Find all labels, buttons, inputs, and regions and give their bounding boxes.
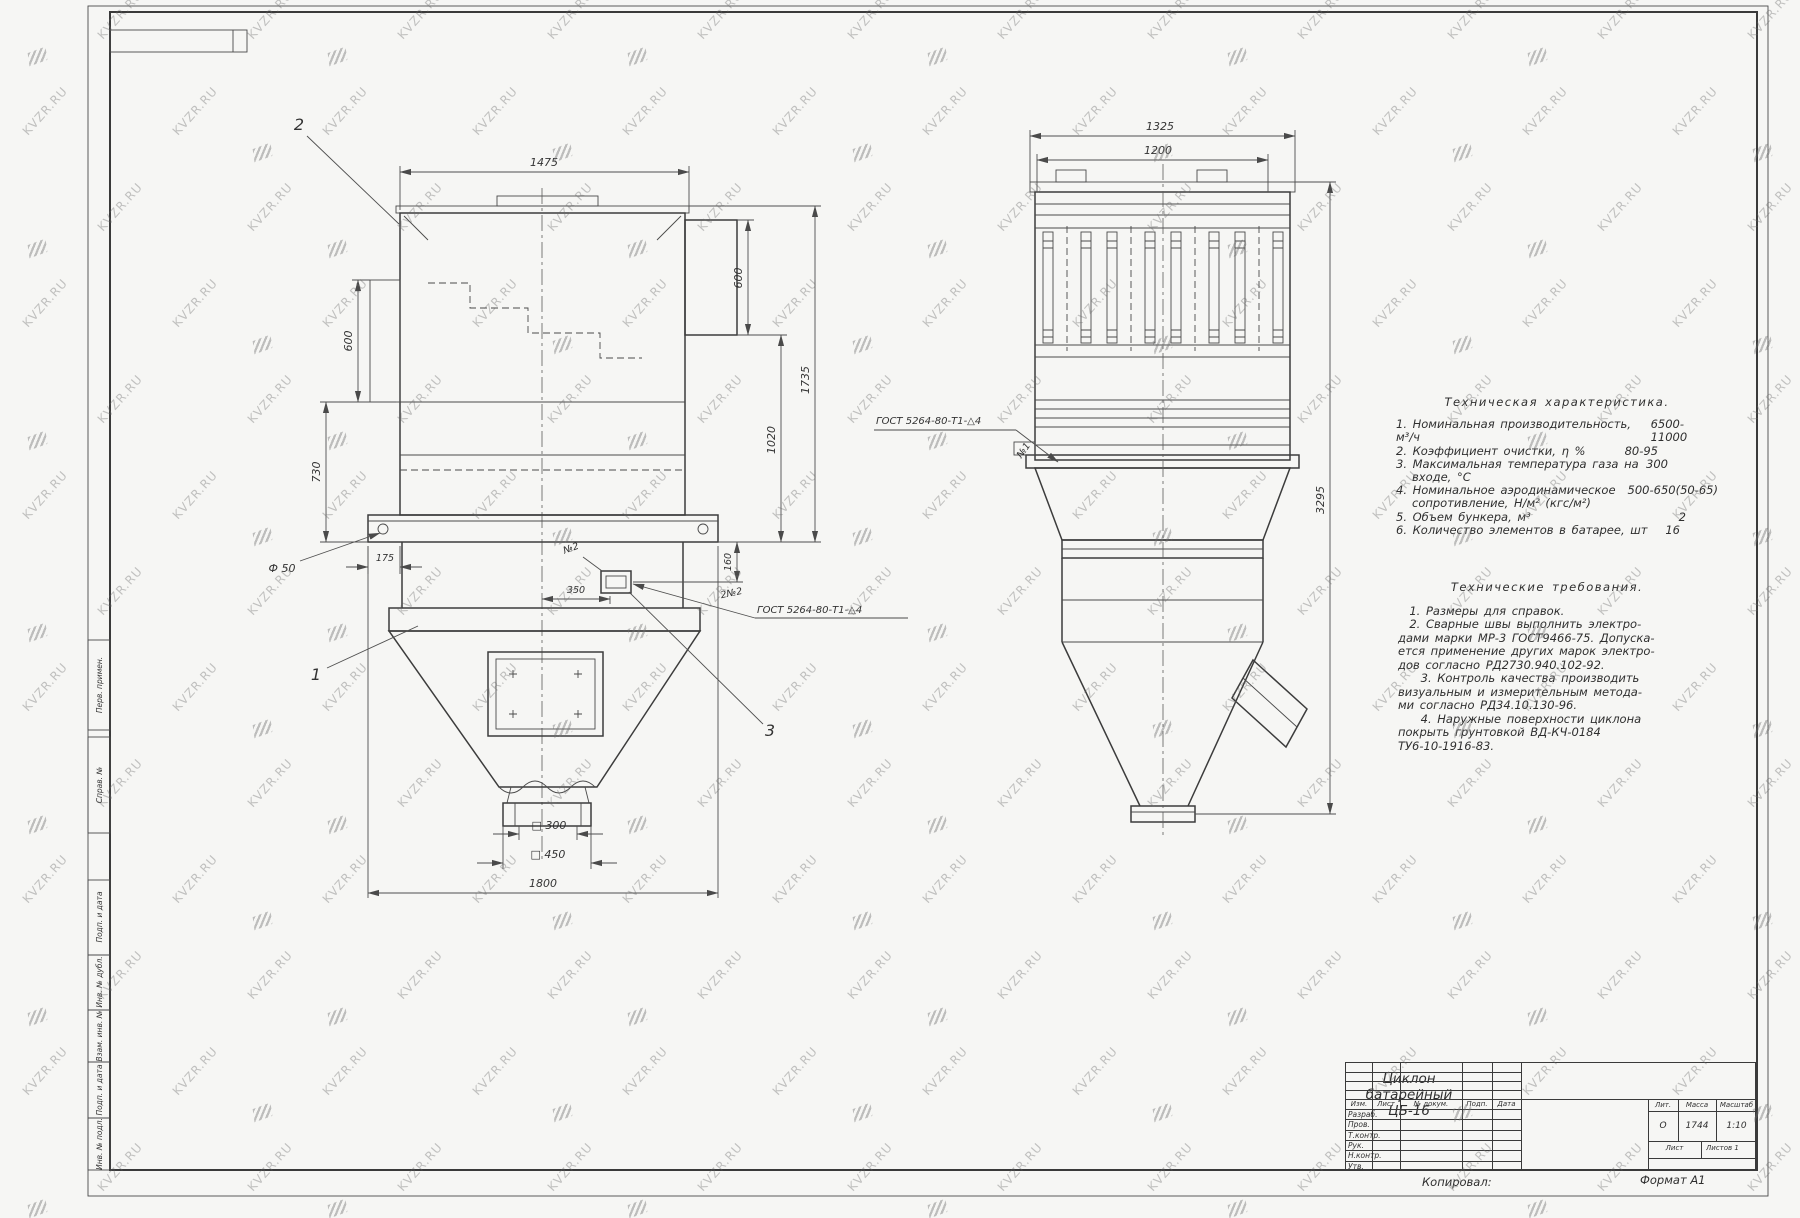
- callout-2-leader: [307, 136, 399, 224]
- rule: [1701, 1141, 1702, 1158]
- corner-gussets: [404, 216, 681, 240]
- watermark-hatch-icon: [328, 1199, 348, 1218]
- callout-2: 2: [294, 115, 304, 134]
- lifting-lug: [1056, 170, 1086, 182]
- stamp-label: Инв. № подл.: [95, 1118, 104, 1170]
- tech-char-label: 5. Объем бункера, м³: [1396, 511, 1531, 524]
- bolt-hole-left: [378, 524, 388, 534]
- dim-350: 350: [567, 585, 585, 596]
- stamp-label: Справ. №: [95, 767, 104, 804]
- tech-char-row: 5. Объем бункера, м³2: [1396, 511, 1718, 524]
- nozzle-inner: [606, 576, 626, 588]
- col-izm: Изм.: [1346, 1100, 1372, 1108]
- scale-value: 1:10: [1716, 1121, 1757, 1131]
- tech-req-line: визуальным и измерительным метода-: [1398, 686, 1696, 700]
- lifting-lug: [1197, 170, 1227, 182]
- support-ring: [368, 515, 718, 542]
- tech-char-value: 16: [1665, 524, 1718, 537]
- lit-label: Лит.: [1648, 1101, 1678, 1109]
- row-tkontr: Т.контр.: [1348, 1131, 1400, 1140]
- hopper: [389, 631, 700, 787]
- tech-req-line: дов согласно РД2730.940.102-92.: [1398, 659, 1696, 673]
- dim-phi50: Ф 50: [269, 562, 296, 575]
- stamp-label: Подп. и дата: [95, 891, 104, 942]
- col-list: Лист: [1372, 1100, 1400, 1108]
- technical-characteristics: Техническая характеристика. 1. Номинальн…: [1396, 396, 1718, 537]
- mass-label: Масса: [1678, 1101, 1716, 1109]
- watermark-hatch-icon: [628, 1199, 648, 1218]
- tech-reqs-title: Технические требования.: [1398, 581, 1696, 595]
- bolt-hole-right: [698, 524, 708, 534]
- tech-char-value: 300: [1646, 458, 1718, 471]
- sheet-label: Лист: [1648, 1144, 1701, 1152]
- weld-gost-callout: ГОСТ 5264-80-Т1-△4: [876, 416, 981, 427]
- left-view-body: [368, 188, 737, 862]
- weld-note-n1: №1: [1014, 441, 1033, 461]
- rule: [1346, 1081, 1521, 1082]
- bunker-walls: [402, 542, 683, 608]
- row-ruk: Рук.: [1348, 1141, 1400, 1150]
- element-tube: [1235, 232, 1245, 343]
- weld-count-2n2: 2№2: [720, 586, 744, 601]
- top-cover: [1030, 182, 1295, 192]
- row-utv: Утв.: [1348, 1162, 1400, 1171]
- sheets-label: Листов 1: [1706, 1144, 1756, 1152]
- element-tube: [1171, 232, 1181, 343]
- tech-char-row: 6. Количество элементов в батарее, шт16: [1396, 524, 1718, 537]
- element-tube: [1107, 232, 1117, 343]
- rule: [1462, 1063, 1463, 1171]
- tech-char-row: 2. Коэффициент очистки, η %80-95: [1396, 445, 1718, 458]
- tech-req-line: 2. Сварные швы выполнить электро-: [1398, 618, 1696, 632]
- right-view-body: [1014, 164, 1307, 838]
- tech-char-label: 6. Количество элементов в батарее, шт: [1396, 524, 1648, 537]
- tech-char-value: 2: [1679, 511, 1718, 524]
- rule: [1648, 1158, 1757, 1159]
- dim-sq300: □ 300: [532, 819, 567, 832]
- element-tube: [1043, 232, 1053, 343]
- callout-3-leader: [629, 592, 763, 724]
- scale-label: Масштаб: [1716, 1101, 1757, 1109]
- transition: [1035, 468, 1290, 540]
- row-nkontr: Н.контр.: [1348, 1151, 1400, 1160]
- scanned-drawing-sheet: { "colors": {"line": "#3c3c3c", "paper":…: [0, 0, 1800, 1200]
- margin-stamps: Перв. примен. Справ. № Подп. и дата Инв.…: [88, 640, 110, 1170]
- body-flange: [1026, 455, 1299, 468]
- stamp-label: Инв. № дубл.: [95, 956, 104, 1007]
- rule: [1492, 1063, 1493, 1171]
- rule: [1648, 1141, 1757, 1142]
- corner-designation-box: [110, 30, 247, 52]
- lit-value: О: [1648, 1121, 1678, 1131]
- callout-3: 3: [765, 721, 775, 740]
- dim-1020: 1020: [765, 426, 778, 454]
- mass-value: 1744: [1678, 1121, 1716, 1131]
- tech-chars-title: Техническая характеристика.: [1396, 396, 1718, 409]
- copied-by-label: Копировал:: [1422, 1175, 1492, 1189]
- dim-3295: 3295: [1314, 486, 1327, 514]
- tech-char-value: 6500-11000: [1651, 418, 1718, 444]
- element-tube: [1209, 232, 1219, 343]
- rule: [1648, 1111, 1757, 1112]
- left-view-front: 1475 600 1020 1735 600 730 Ф 50 175: [269, 115, 908, 898]
- dim-1200: 1200: [1144, 144, 1172, 157]
- rule: [1346, 1090, 1521, 1091]
- casing: [1035, 192, 1290, 460]
- watermark-hatch-icon: [928, 1199, 948, 1218]
- dim-1800: 1800: [529, 877, 557, 890]
- tech-req-line: покрыть грунтовкой ВД-КЧ-0184: [1398, 726, 1696, 740]
- weld-note-n2: №2: [561, 541, 581, 557]
- weld-n2-leader: [583, 557, 602, 571]
- access-door-inner: [496, 659, 595, 729]
- dim-1325: 1325: [1146, 120, 1174, 133]
- bunker-lines: [1062, 600, 1263, 642]
- tech-req-line: ТУ6-10-1916-83.: [1398, 740, 1696, 754]
- right-view-side: 1325 1200 3295 ГОСТ 5264-80-Т1-△4 №1: [874, 120, 1336, 838]
- dim-600-left: 600: [342, 331, 355, 352]
- chute-line: [1243, 678, 1297, 727]
- lifting-lug: [497, 196, 598, 206]
- stamp-label: Подп. и дата: [95, 1064, 104, 1115]
- tech-req-line: ется применение других марок электро-: [1398, 645, 1696, 659]
- tech-char-row: 1. Номинальная производительность, м³/ч6…: [1396, 418, 1718, 444]
- outlet-box: [685, 220, 737, 335]
- row-razrab: Разраб.: [1348, 1110, 1400, 1119]
- top-cover: [396, 206, 689, 213]
- tech-req-line: 4. Наружные поверхности циклона: [1398, 713, 1696, 727]
- doc-title-line1: Циклон: [1346, 1071, 1472, 1087]
- tech-char-value: 500-650(50-65): [1628, 484, 1718, 497]
- rule: [1346, 1072, 1521, 1073]
- sheets-count: 1: [1734, 1144, 1738, 1152]
- nozzle-flange-item3: [601, 571, 631, 593]
- rule: [1648, 1099, 1649, 1171]
- inlet-duct: [370, 280, 400, 402]
- col-docnum: № докум.: [1400, 1100, 1462, 1108]
- technical-requirements: Технические требования. 1. Размеры для с…: [1398, 581, 1696, 753]
- tech-req-line: 3. Контроль качества производить: [1398, 672, 1696, 686]
- discharge-chute: [1232, 660, 1307, 747]
- row-prov: Пров.: [1348, 1120, 1400, 1129]
- outlet-taper: [507, 787, 589, 803]
- tech-req-line: 1. Размеры для справок.: [1398, 605, 1696, 619]
- element-tube: [1273, 232, 1283, 343]
- gas-path-hidden: [428, 283, 642, 358]
- dim-730: 730: [310, 462, 323, 483]
- weld-gost-callout: ГОСТ 5264-80-Т1-△4: [757, 605, 862, 616]
- element-hatch: [1107, 241, 1155, 337]
- watermark-hatch-icon: [28, 1199, 48, 1218]
- tech-req-line: дами марки МР-3 ГОСТ9466-75. Допуска-: [1398, 632, 1696, 646]
- element-hatch: [1235, 241, 1283, 337]
- cone: [1062, 642, 1263, 806]
- element-hatch: [1043, 241, 1091, 337]
- access-door: [488, 652, 603, 736]
- stamp-label: Взам. инв. №: [95, 1010, 104, 1061]
- dim-1475: 1475: [530, 156, 558, 169]
- col-data: Дата: [1492, 1100, 1521, 1108]
- internal-lines: [400, 402, 685, 455]
- rule: [1521, 1063, 1522, 1171]
- watermark-hatch-icon: [1528, 1199, 1548, 1218]
- dim-sq450: □ 450: [531, 848, 566, 861]
- tech-char-label: 1. Номинальная производительность, м³/ч: [1396, 418, 1651, 444]
- callout-1-leader: [327, 626, 418, 668]
- col-podp: Подп.: [1462, 1100, 1492, 1108]
- title-block: Изм. Лист № докум. Подп. Дата Разраб. Пр…: [1345, 1062, 1756, 1170]
- ext-lines: [400, 166, 689, 210]
- sheets-word: Листов: [1706, 1144, 1732, 1152]
- watermark-hatch-icon: [1228, 1199, 1248, 1218]
- element-tube: [1145, 232, 1155, 343]
- tech-char-value: 80-95: [1625, 445, 1718, 458]
- shell-lines: [1035, 204, 1290, 445]
- tech-req-line: ми согласно РД34.10.130-96.: [1398, 699, 1696, 713]
- tech-char-row: сопротивление, Н/м² (кгс/м²): [1396, 497, 1718, 510]
- format-label: Формат А1: [1640, 1173, 1706, 1187]
- dim-600-right: 600: [732, 268, 745, 289]
- dim-160: 160: [723, 553, 734, 571]
- dim-175: 175: [376, 553, 394, 564]
- callout-1: 1: [311, 665, 321, 684]
- door-bolt-marks: [509, 670, 582, 718]
- ext-lines: [352, 280, 396, 402]
- tech-char-label: сопротивление, Н/м² (кгс/м²): [1396, 497, 1591, 510]
- stamp-label: Перв. примен.: [95, 657, 104, 713]
- left-view-callouts: 2 1 3 №2 2№2 ГОСТ 5264-80-Т1-△4: [294, 115, 908, 740]
- tech-char-label: 2. Коэффициент очистки, η %: [1396, 445, 1585, 458]
- element-tube: [1081, 232, 1091, 343]
- rule: [1400, 1063, 1401, 1171]
- bunker-band: [389, 608, 700, 631]
- dim-1735: 1735: [799, 366, 812, 394]
- element-hatch: [1171, 241, 1219, 337]
